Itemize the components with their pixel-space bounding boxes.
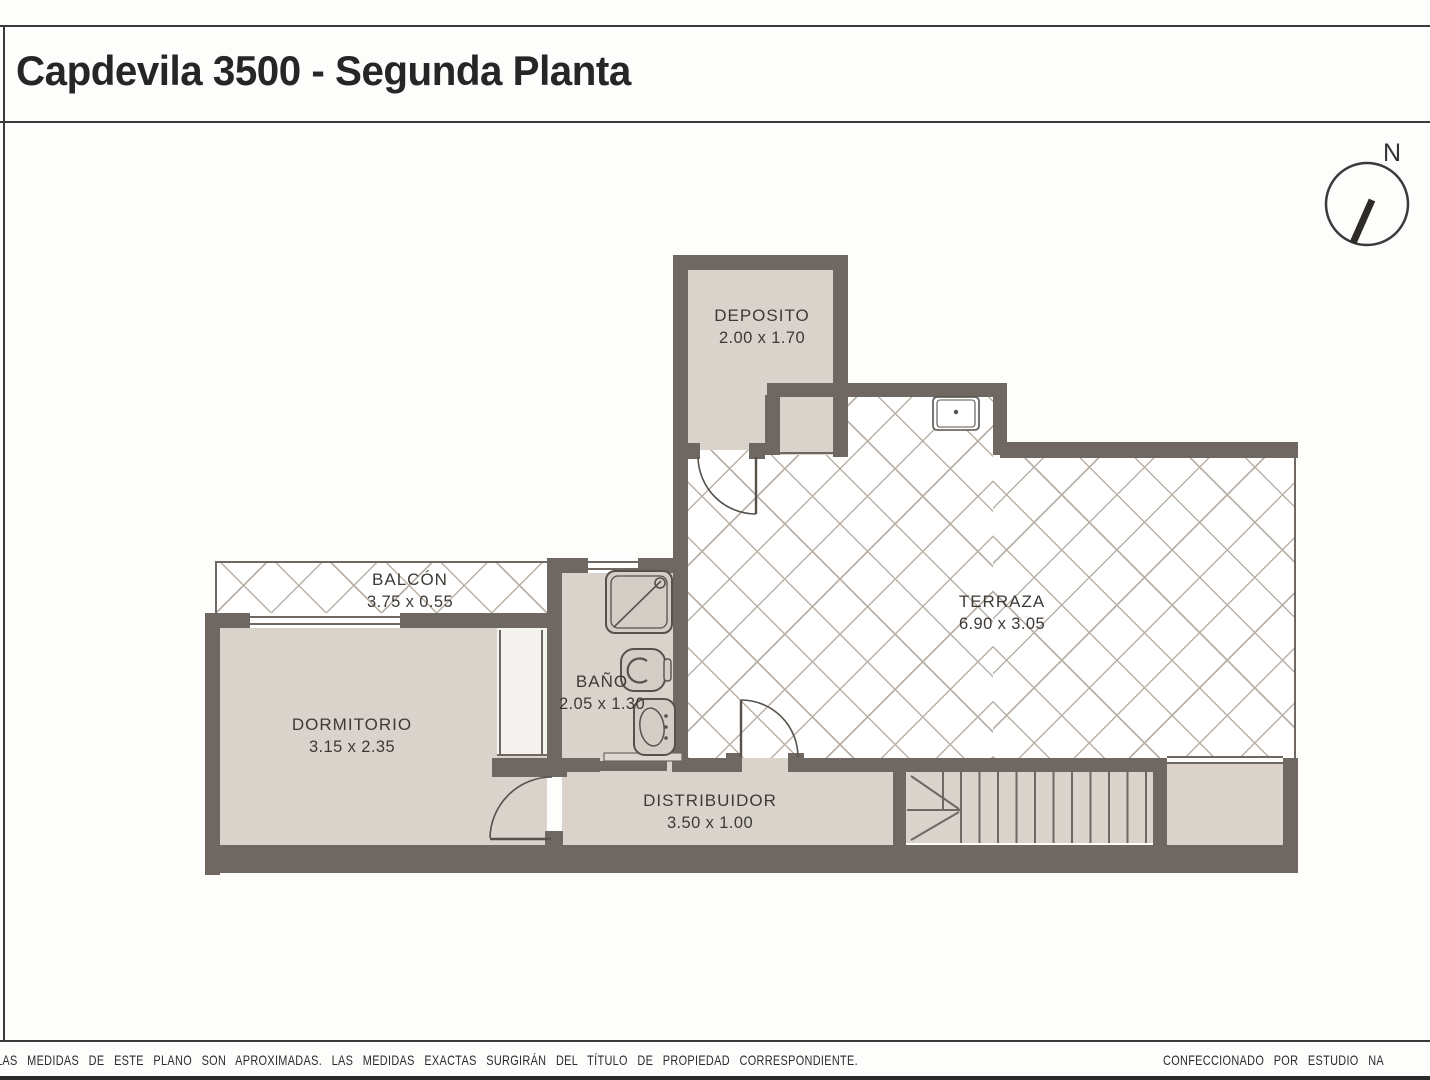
door-jamb [545,831,563,846]
wall [673,255,688,558]
stair-landing-floor [1167,763,1283,845]
wall [673,558,688,772]
bano-floor [562,573,673,758]
footer-separator-line [0,1040,1430,1042]
door-jamb [684,443,700,459]
closet-line-bottom [497,754,547,756]
balcon-edge-line [215,561,217,613]
room-name: DEPOSITO [672,306,852,326]
footer-credit: CONFECCIONADO POR ESTUDIO NA [1163,1052,1384,1068]
bano-label: BAÑO 2.05 x 1.30 [540,672,664,715]
window-line [250,623,400,625]
terraza-niche-floor [780,395,833,455]
wall [1283,758,1298,848]
wall [767,383,1007,397]
wall [492,758,567,777]
door-jamb [788,753,804,772]
room-dims: 3.75 x 0.55 [320,593,500,613]
floor-plan-page: { "title": "Capdevila 3500 - Segunda Pla… [0,0,1430,1080]
bano-door-opening [600,758,672,772]
balcon-label: BALCÓN 3.75 x 0.55 [320,570,500,613]
closet-line-left [499,630,501,754]
landing-edge-line [1167,762,1283,764]
wall [765,395,780,455]
north-compass-icon [1326,163,1408,245]
wall [1000,442,1298,458]
wall [205,845,1298,873]
room-dims: 3.15 x 2.35 [262,738,442,758]
door-jamb [749,443,765,459]
window-line [588,568,638,570]
room-dims: 2.00 x 1.70 [672,329,852,349]
wall [1153,758,1167,845]
wall [833,395,848,457]
wall [673,255,848,270]
deposito-label: DEPOSITO 2.00 x 1.70 [672,306,852,349]
terraza-door-opening [742,758,788,772]
room-name: DISTRIBUIDOR [620,791,800,811]
door-jamb [726,753,742,772]
room-name: BAÑO [540,672,664,692]
floor-plan: DEPOSITO 2.00 x 1.70 TERRAZA 6.90 x 3.05… [0,0,1430,1080]
footer-disclaimer: LAS MEDIDAS DE ESTE PLANO SON APROXIMADA… [0,1052,858,1068]
balcon-edge-line [215,561,548,563]
landing-edge-line [1167,756,1283,758]
stair-treads [962,772,1153,843]
room-dims: 2.05 x 1.30 [540,695,664,715]
terraza-label: TERRAZA 6.90 x 3.05 [912,592,1092,635]
room-name: BALCÓN [320,570,500,590]
window-line [588,561,638,563]
room-dims: 3.50 x 1.00 [620,814,800,834]
room-name: TERRAZA [912,592,1092,612]
dormitorio-label: DORMITORIO 3.15 x 2.35 [262,715,442,758]
niche-edge-line [780,452,833,454]
window-line [250,616,400,618]
distribuidor-label: DISTRIBUIDOR 3.50 x 1.00 [620,791,800,834]
wall [893,772,906,845]
bottom-border-line [0,1076,1430,1080]
room-name: DORMITORIO [262,715,442,735]
wall [547,558,562,758]
wall [205,613,220,875]
terraza-edge-line [1294,458,1296,760]
room-dims: 6.90 x 3.05 [912,615,1092,635]
